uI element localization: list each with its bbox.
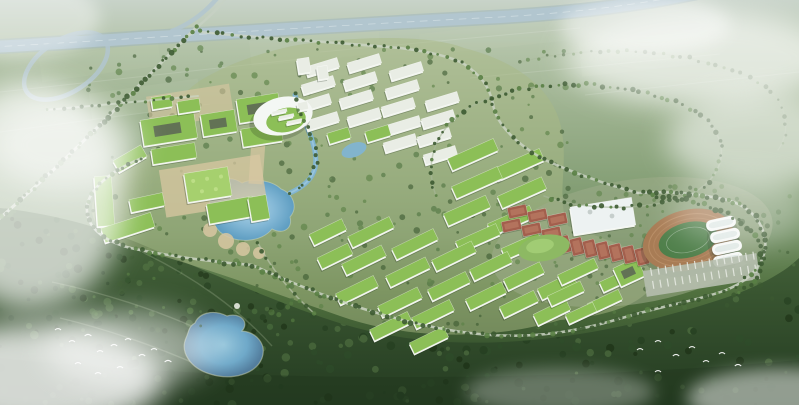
- rendering-canvas: [0, 0, 799, 405]
- building: [295, 57, 312, 76]
- pond-pavilion: [234, 303, 240, 309]
- building: [315, 65, 329, 82]
- aerial-campus-rendering: [0, 0, 799, 405]
